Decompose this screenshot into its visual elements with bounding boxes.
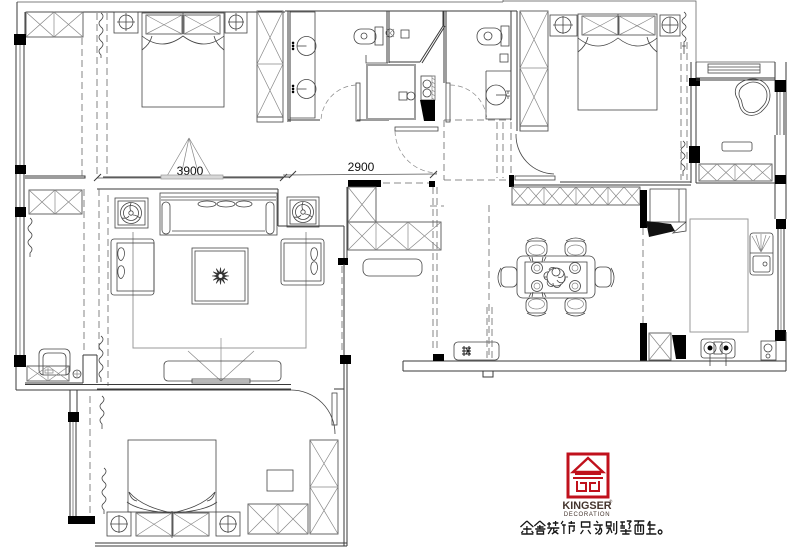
svg-text:KINGSER: KINGSER: [562, 500, 611, 512]
svg-text:2900: 2900: [348, 160, 375, 174]
svg-text:DECORATION: DECORATION: [564, 512, 611, 518]
